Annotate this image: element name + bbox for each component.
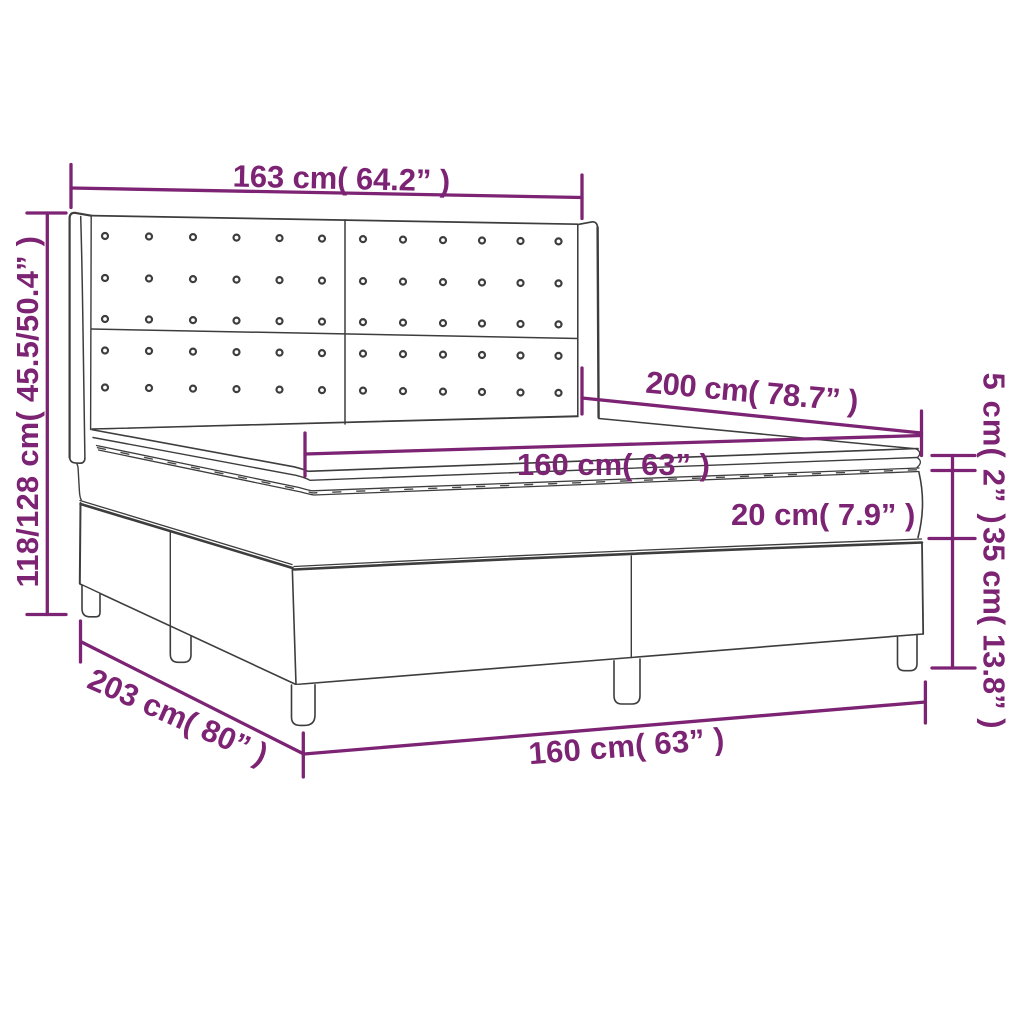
svg-text:160 cm( 63” ): 160 cm( 63” ) [527,721,725,771]
svg-text:35 cm( 13.8” ): 35 cm( 13.8” ) [977,527,1012,729]
svg-text:20 cm( 7.9” ): 20 cm( 7.9” ) [731,497,915,532]
svg-text:203 cm( 80” ): 203 cm( 80” ) [83,661,274,771]
svg-text:118/128 cm( 45.5/50.4” ): 118/128 cm( 45.5/50.4” ) [10,236,45,588]
svg-text:200 cm( 78.7” ): 200 cm( 78.7” ) [644,365,859,419]
svg-text:160 cm( 63” ): 160 cm( 63” ) [517,447,710,482]
svg-text:5 cm( 2” ): 5 cm( 2” ) [977,373,1012,525]
svg-text:163 cm( 64.2” ): 163 cm( 64.2” ) [232,159,450,199]
